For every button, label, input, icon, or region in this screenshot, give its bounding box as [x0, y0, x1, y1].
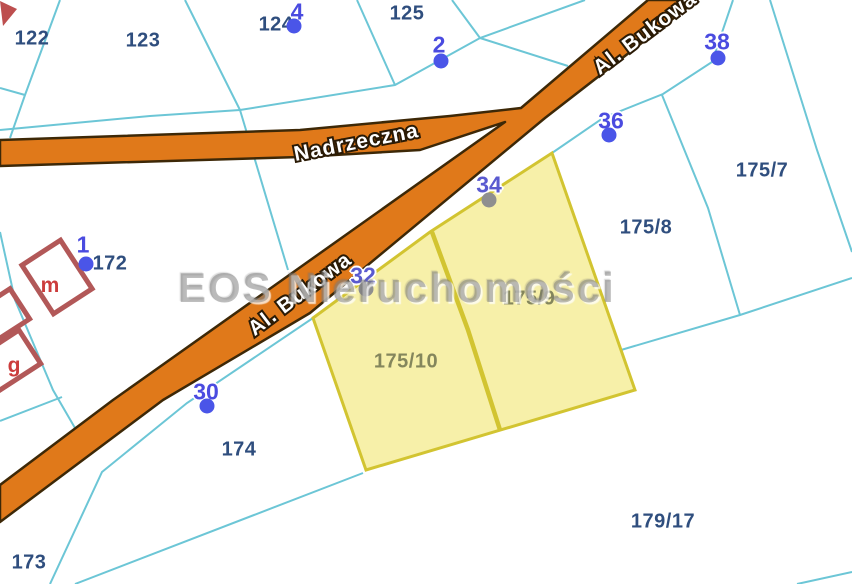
- address-marker-dot: [287, 19, 302, 34]
- address-marker-dot: [602, 128, 617, 143]
- address-marker-dot: [711, 51, 726, 66]
- parcel-label-172: 172: [93, 253, 128, 276]
- address-marker-dot: [200, 399, 215, 414]
- address-marker-dot: [434, 54, 449, 69]
- address-marker-dot: [482, 193, 497, 208]
- address-marker-dot: [79, 257, 94, 272]
- boundary-line: [185, 0, 240, 110]
- agency-watermark: EOS Nieruchomości: [178, 264, 616, 312]
- cadastral-map-canvas[interactable]: Nadrzeczna Al. Bukowa Al. Bukowa m g 122…: [0, 0, 852, 584]
- address-marker-number: 1: [77, 232, 90, 259]
- parcel-label-175-7: 175/7: [736, 160, 789, 183]
- parcel-label-175-8: 175/8: [620, 217, 673, 240]
- parcel-label-122: 122: [15, 28, 50, 51]
- parcel-label-125: 125: [390, 3, 425, 26]
- parcel-label-123: 123: [126, 30, 161, 53]
- boundary-line: [480, 38, 568, 66]
- building-outline-corner: [0, 1, 17, 26]
- boundary-line: [770, 0, 852, 252]
- boundary-line: [75, 473, 363, 584]
- parcel-label-174: 174: [222, 439, 257, 462]
- parcel-label-175-10: 175/10: [374, 351, 438, 374]
- boundary-line: [662, 95, 740, 315]
- boundary-line: [0, 88, 25, 95]
- building-letter-m: m: [41, 274, 60, 297]
- boundary-line: [452, 0, 480, 38]
- parcel-label-173: 173: [12, 552, 47, 575]
- boundary-line: [0, 397, 62, 421]
- building-outlines: m g: [0, 1, 92, 392]
- parcel-label-179-17: 179/17: [631, 511, 695, 534]
- boundary-line: [797, 572, 852, 584]
- building-letter-g: g: [8, 354, 21, 377]
- boundary-line: [621, 278, 852, 350]
- boundary-line: [10, 0, 60, 138]
